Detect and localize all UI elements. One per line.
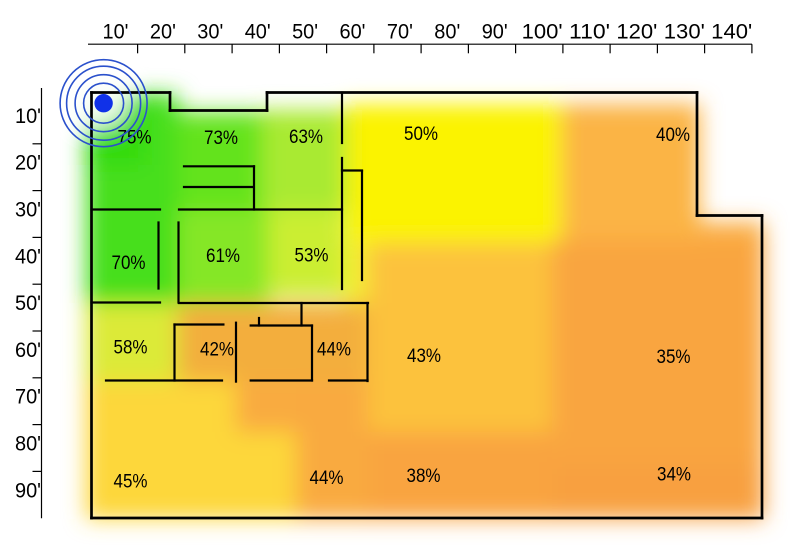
svg-text:10': 10' xyxy=(15,104,41,128)
svg-text:20': 20' xyxy=(15,151,41,175)
svg-text:45%: 45% xyxy=(114,471,148,493)
svg-text:40': 40' xyxy=(15,244,41,268)
svg-text:40': 40' xyxy=(245,20,271,44)
svg-text:60': 60' xyxy=(15,338,41,362)
svg-text:38%: 38% xyxy=(407,465,441,487)
svg-text:80': 80' xyxy=(15,432,41,456)
svg-text:20': 20' xyxy=(150,20,176,44)
svg-text:30': 30' xyxy=(15,198,41,222)
svg-text:61%: 61% xyxy=(206,245,240,267)
svg-text:70': 70' xyxy=(387,20,413,44)
svg-text:75%: 75% xyxy=(118,127,152,149)
svg-text:140': 140' xyxy=(711,20,752,44)
svg-text:60': 60' xyxy=(340,20,366,44)
svg-text:90': 90' xyxy=(15,478,41,502)
svg-text:43%: 43% xyxy=(407,345,441,367)
svg-text:42%: 42% xyxy=(200,339,234,361)
svg-text:130': 130' xyxy=(664,20,705,44)
svg-text:70': 70' xyxy=(15,385,41,409)
svg-text:34%: 34% xyxy=(657,464,691,486)
svg-text:35%: 35% xyxy=(657,346,691,368)
svg-text:80': 80' xyxy=(434,20,460,44)
svg-text:100': 100' xyxy=(522,20,563,44)
svg-text:110': 110' xyxy=(569,20,610,44)
svg-text:50': 50' xyxy=(15,291,41,315)
svg-text:30': 30' xyxy=(197,20,223,44)
svg-text:58%: 58% xyxy=(114,337,148,359)
svg-text:120': 120' xyxy=(616,20,657,44)
svg-text:10': 10' xyxy=(103,20,129,44)
svg-text:73%: 73% xyxy=(204,127,238,149)
svg-text:70%: 70% xyxy=(112,252,146,274)
svg-text:63%: 63% xyxy=(289,126,323,148)
svg-text:50%: 50% xyxy=(404,123,438,145)
svg-text:53%: 53% xyxy=(295,245,329,267)
svg-text:44%: 44% xyxy=(310,467,344,489)
svg-text:90': 90' xyxy=(482,20,508,44)
svg-text:50': 50' xyxy=(292,20,318,44)
svg-text:44%: 44% xyxy=(317,339,351,361)
svg-text:40%: 40% xyxy=(656,124,690,146)
